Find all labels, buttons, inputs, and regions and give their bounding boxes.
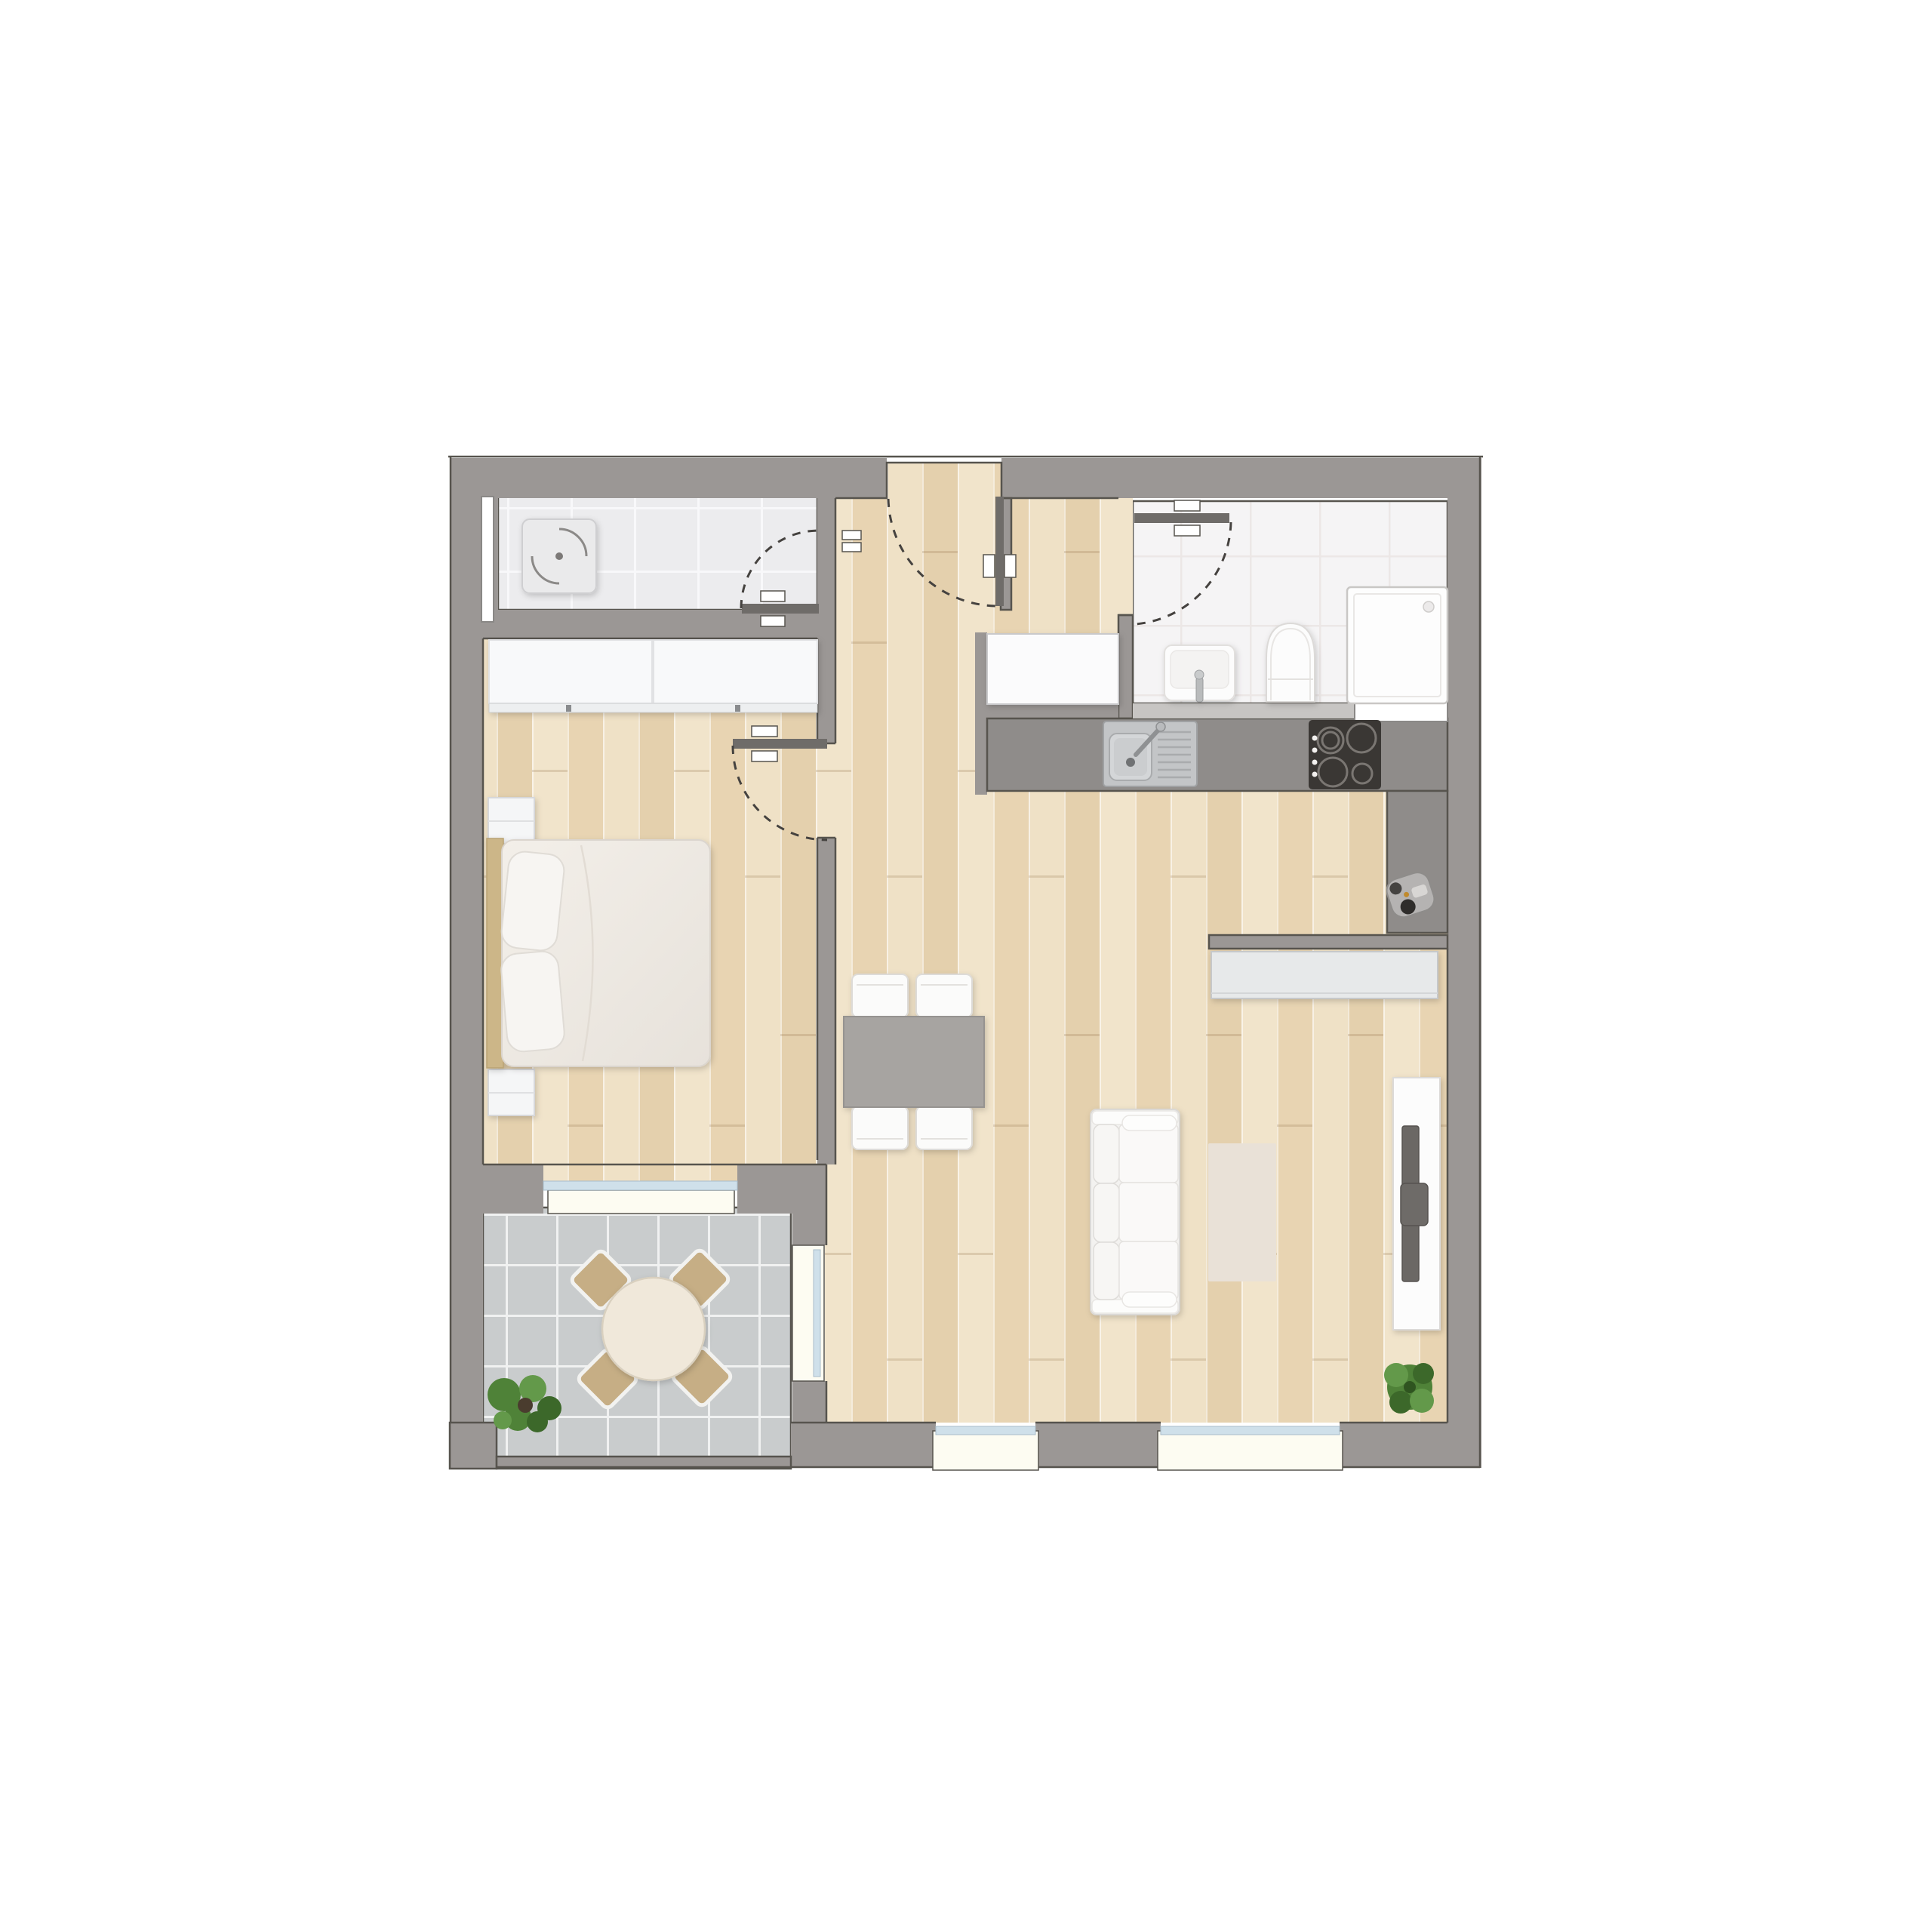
wardrobe-panel-left	[489, 640, 652, 703]
kitchen-sink-drainboard	[1158, 732, 1191, 777]
wardrobe	[489, 640, 817, 712]
wardrobe-handle-icon	[735, 705, 740, 712]
sofa-seat-cushion	[1119, 1124, 1178, 1183]
wardrobe-panel-right	[654, 640, 817, 703]
wall-top-right	[1001, 458, 1481, 498]
terrace-door-glass	[814, 1250, 820, 1377]
wall-south-1	[791, 1423, 936, 1468]
wall-east	[1447, 458, 1481, 1468]
tv-mount	[1401, 1183, 1428, 1226]
wall-stub-sideboard	[1209, 935, 1447, 949]
dining-chair	[916, 1106, 972, 1149]
entry-cabinet	[987, 634, 1118, 704]
wall-living-west-upper	[792, 1164, 826, 1245]
wall-living-west-lower	[792, 1381, 826, 1423]
wall-south-3	[1340, 1423, 1481, 1468]
door-handle-icon	[1174, 525, 1200, 536]
terrace-table	[602, 1278, 705, 1380]
living-window-small-sill	[933, 1431, 1038, 1470]
cooktop	[1309, 720, 1381, 789]
door-handle-icon	[842, 543, 861, 552]
wardrobe-handle-icon	[566, 705, 571, 712]
bathroom-niche	[1355, 702, 1447, 721]
sofa-seat-cushion	[1119, 1241, 1178, 1300]
wall-bedroom-east	[817, 838, 835, 1164]
floor-plan-page	[0, 0, 1932, 1932]
bedroom-window-sill	[548, 1190, 734, 1214]
toilet	[1266, 623, 1315, 702]
rug	[1208, 1143, 1276, 1281]
sofa-seat-cushion	[1119, 1183, 1178, 1241]
wall-bedroom-south-left	[483, 1164, 543, 1214]
bedroom-door-leaf	[733, 739, 827, 749]
dining-chair	[852, 974, 908, 1017]
washing-machine	[522, 519, 596, 593]
utility-room-fixtures	[522, 519, 596, 593]
wall-hall-west-upper	[817, 498, 835, 743]
door-handle-icon	[761, 616, 785, 626]
washing-machine-hub	[555, 552, 563, 560]
door-handle-icon	[1004, 555, 1016, 577]
washbasin	[1164, 645, 1235, 702]
utility-door-leaf	[742, 604, 819, 614]
terrace-door	[792, 1245, 824, 1381]
wall-terrace-corner-block	[450, 1423, 497, 1469]
threshold-ledge	[1133, 703, 1355, 718]
wall-south-2	[1035, 1423, 1161, 1468]
living-window-large-glass	[1161, 1426, 1340, 1435]
kitchen-sink	[1103, 721, 1197, 786]
floor-bedroom-doorway	[817, 743, 835, 838]
dining-chair	[916, 974, 972, 1017]
sofa-back-cushion	[1094, 1183, 1119, 1242]
living-window-large-sill	[1158, 1431, 1343, 1470]
double-bed	[487, 838, 710, 1068]
entrance-door-leaf	[995, 497, 1004, 606]
door-handle-icon	[761, 591, 785, 601]
toilet-body	[1266, 623, 1315, 702]
door-handle-icon	[842, 531, 861, 540]
wardrobe-front-edge	[489, 703, 817, 712]
bedroom-window-glass	[543, 1181, 737, 1190]
sofa-3-seat	[1091, 1109, 1180, 1315]
utility-window	[481, 497, 494, 622]
sofa-back-cushion	[1094, 1124, 1119, 1183]
tv-area	[1393, 1078, 1440, 1330]
living-window-small-glass	[936, 1426, 1035, 1435]
floor-bedroom-window-reveal	[543, 1164, 737, 1183]
kitchen-sink-basin-inner	[1114, 738, 1147, 776]
dining-chair	[852, 1106, 908, 1149]
sofa-back-cushion	[1094, 1242, 1119, 1300]
sideboard	[1211, 952, 1438, 998]
kitchen-faucet-base	[1156, 722, 1165, 731]
bathroom-door-leaf	[1134, 513, 1229, 523]
bedroom-window	[543, 1181, 737, 1214]
shower-drain-icon	[1423, 601, 1434, 612]
bed-pillow	[500, 950, 565, 1053]
floor-plan-svg	[0, 0, 1932, 1932]
wall-kitchen-west-strip	[975, 632, 987, 795]
dining-table	[844, 1017, 984, 1107]
living-window-large	[1158, 1426, 1343, 1470]
bed-headboard	[487, 838, 503, 1068]
wall-west-lower	[450, 638, 483, 1423]
indoor-plant	[1384, 1363, 1434, 1414]
door-handle-icon	[752, 751, 777, 761]
door-handle-icon	[1174, 500, 1200, 511]
sofa-bolster	[1122, 1115, 1177, 1131]
kitchen-sink-drain-icon	[1126, 758, 1135, 767]
washbasin-faucet	[1196, 678, 1203, 702]
door-handle-icon	[983, 555, 995, 577]
door-handle-icon	[752, 726, 777, 737]
shower	[1347, 587, 1447, 703]
bed-pillow	[500, 850, 566, 952]
wall-top-left	[450, 458, 887, 498]
wall-bathroom-west	[1118, 615, 1133, 718]
living-window-small	[933, 1426, 1038, 1470]
wall-under-cabinet	[987, 704, 1118, 718]
floor-entrance-threshold	[887, 462, 1001, 500]
washbasin-faucet-base	[1195, 670, 1204, 679]
sofa-bolster	[1122, 1292, 1177, 1307]
